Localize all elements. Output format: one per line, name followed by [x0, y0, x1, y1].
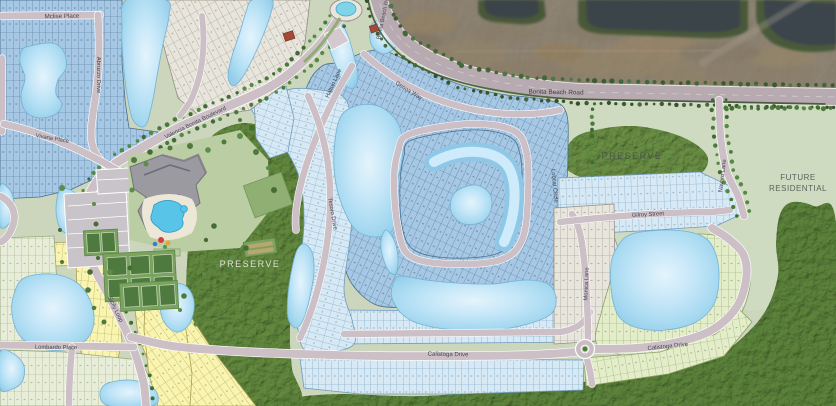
- svg-text:FUTURE: FUTURE: [780, 173, 815, 182]
- svg-text:Abruzzo Drive: Abruzzo Drive: [95, 57, 101, 93]
- svg-text:Lombardo Place: Lombardo Place: [35, 345, 77, 352]
- svg-text:PRESERVE: PRESERVE: [602, 151, 663, 161]
- svg-text:PRESERVE: PRESERVE: [220, 259, 281, 269]
- svg-text:Monica Lane: Monica Lane: [583, 267, 590, 300]
- svg-text:Calistoga Drive: Calistoga Drive: [428, 352, 469, 359]
- svg-text:Bonita Beach Road: Bonita Beach Road: [528, 89, 584, 97]
- svg-text:Mclise Place: Mclise Place: [45, 13, 80, 21]
- svg-text:RESIDENTIAL: RESIDENTIAL: [769, 184, 827, 193]
